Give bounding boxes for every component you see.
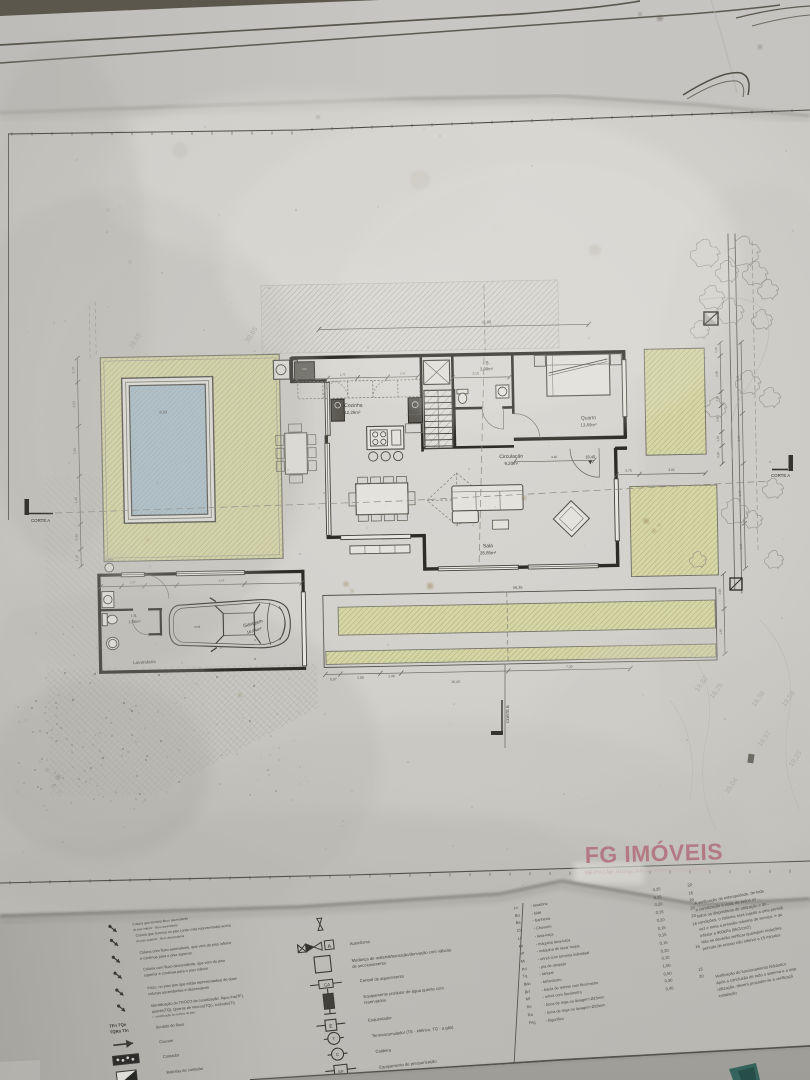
svg-text:CORTE A: CORTE A bbox=[31, 518, 50, 523]
svg-text:3,00: 3,00 bbox=[668, 468, 675, 472]
svg-text:12,26m²: 12,26m² bbox=[344, 410, 361, 415]
svg-text:1,40: 1,40 bbox=[719, 629, 723, 635]
svg-text:Tq: Tq bbox=[522, 973, 527, 979]
svg-text:56,35: 56,35 bbox=[513, 586, 523, 590]
svg-text:16,43: 16,43 bbox=[451, 680, 460, 684]
svg-text:Pd: Pd bbox=[521, 966, 526, 972]
svg-text:35,85m²: 35,85m² bbox=[480, 550, 497, 555]
svg-text:2,00: 2,00 bbox=[357, 676, 364, 680]
svg-text:Frig: Frig bbox=[528, 1019, 535, 1025]
svg-text:Cozinha: Cozinha bbox=[344, 403, 363, 409]
svg-text:Sala: Sala bbox=[483, 543, 493, 549]
svg-text:18,40: 18,40 bbox=[585, 454, 596, 459]
svg-text:CORTE A: CORTE A bbox=[771, 473, 790, 478]
svg-text:CORTE B: CORTE B bbox=[505, 705, 510, 723]
svg-text:Mi: Mi bbox=[520, 958, 525, 964]
svg-text:3,00: 3,00 bbox=[718, 589, 722, 595]
svg-text:1,40: 1,40 bbox=[388, 674, 395, 678]
svg-text:Lv: Lv bbox=[514, 905, 519, 910]
svg-text:Bd: Bd bbox=[515, 913, 520, 919]
svg-text:Re: Re bbox=[526, 1004, 532, 1010]
svg-text:1,10: 1,10 bbox=[715, 396, 719, 402]
svg-text:1,36: 1,36 bbox=[716, 436, 720, 442]
svg-text:Circulação: Circulação bbox=[499, 454, 523, 460]
svg-text:0,97: 0,97 bbox=[330, 677, 337, 681]
svg-text:3,40: 3,40 bbox=[551, 455, 558, 459]
svg-text:0,82: 0,82 bbox=[716, 452, 720, 458]
svg-text:Bdo: Bdo bbox=[523, 981, 531, 987]
svg-text:2,86: 2,86 bbox=[715, 371, 719, 377]
svg-text:1,70: 1,70 bbox=[340, 373, 346, 377]
svg-text:0,70: 0,70 bbox=[625, 469, 632, 473]
svg-text:CA: CA bbox=[324, 982, 331, 988]
svg-text:5,60: 5,60 bbox=[715, 416, 719, 422]
